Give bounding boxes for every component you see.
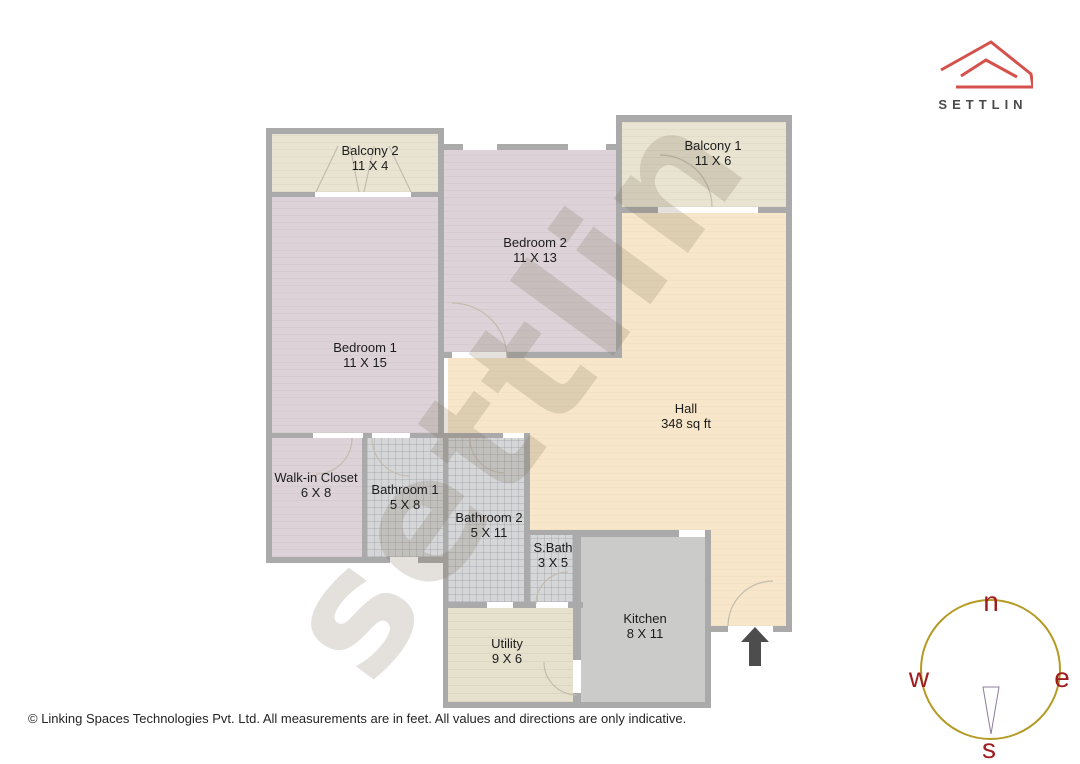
room-dims: 348 sq ft — [661, 416, 711, 431]
room-label-bathroom-2: Bathroom 2 5 X 11 — [455, 510, 522, 540]
room-name: Bedroom 2 — [503, 235, 567, 250]
room-name: Balcony 1 — [684, 138, 741, 153]
room-dims: 5 X 8 — [371, 497, 438, 512]
room-dims: 11 X 13 — [503, 250, 567, 265]
room-dims: 3 X 5 — [533, 555, 572, 570]
room-dims: 11 X 4 — [341, 158, 398, 173]
room-dims: 8 X 11 — [623, 626, 666, 641]
room-label-bathroom-1: Bathroom 1 5 X 8 — [371, 482, 438, 512]
room-label-bedroom-2: Bedroom 2 11 X 13 — [503, 235, 567, 265]
room-name: Kitchen — [623, 611, 666, 626]
room-label-walk-in-closet: Walk-in Closet 6 X 8 — [274, 470, 357, 500]
room-label-balcony-2: Balcony 2 11 X 4 — [341, 143, 398, 173]
room-name: Hall — [661, 401, 711, 416]
room-label-s-bath: S.Bath 3 X 5 — [533, 540, 572, 570]
room-dims: 9 X 6 — [491, 651, 523, 666]
room-name: Walk-in Closet — [274, 470, 357, 485]
room-name: Balcony 2 — [341, 143, 398, 158]
room-dims: 6 X 8 — [274, 485, 357, 500]
room-name: Utility — [491, 636, 523, 651]
room-name: Bathroom 2 — [455, 510, 522, 525]
room-label-kitchen: Kitchen 8 X 11 — [623, 611, 666, 641]
room-dims: 11 X 15 — [333, 355, 397, 370]
room-name: Bathroom 1 — [371, 482, 438, 497]
room-name: S.Bath — [533, 540, 572, 555]
room-label-hall: Hall 348 sq ft — [661, 401, 711, 431]
room-label-bedroom-1: Bedroom 1 11 X 15 — [333, 340, 397, 370]
room-label-utility: Utility 9 X 6 — [491, 636, 523, 666]
door-swing-arcs — [0, 0, 1080, 764]
floorplan-page: settlin Balcony 2 11 X 4 Bedroom 1 11 X … — [0, 0, 1080, 764]
room-dims: 11 X 6 — [684, 153, 741, 168]
room-label-balcony-1: Balcony 1 11 X 6 — [684, 138, 741, 168]
room-dims: 5 X 11 — [455, 525, 522, 540]
room-name: Bedroom 1 — [333, 340, 397, 355]
entrance-arrow-icon — [740, 627, 770, 667]
